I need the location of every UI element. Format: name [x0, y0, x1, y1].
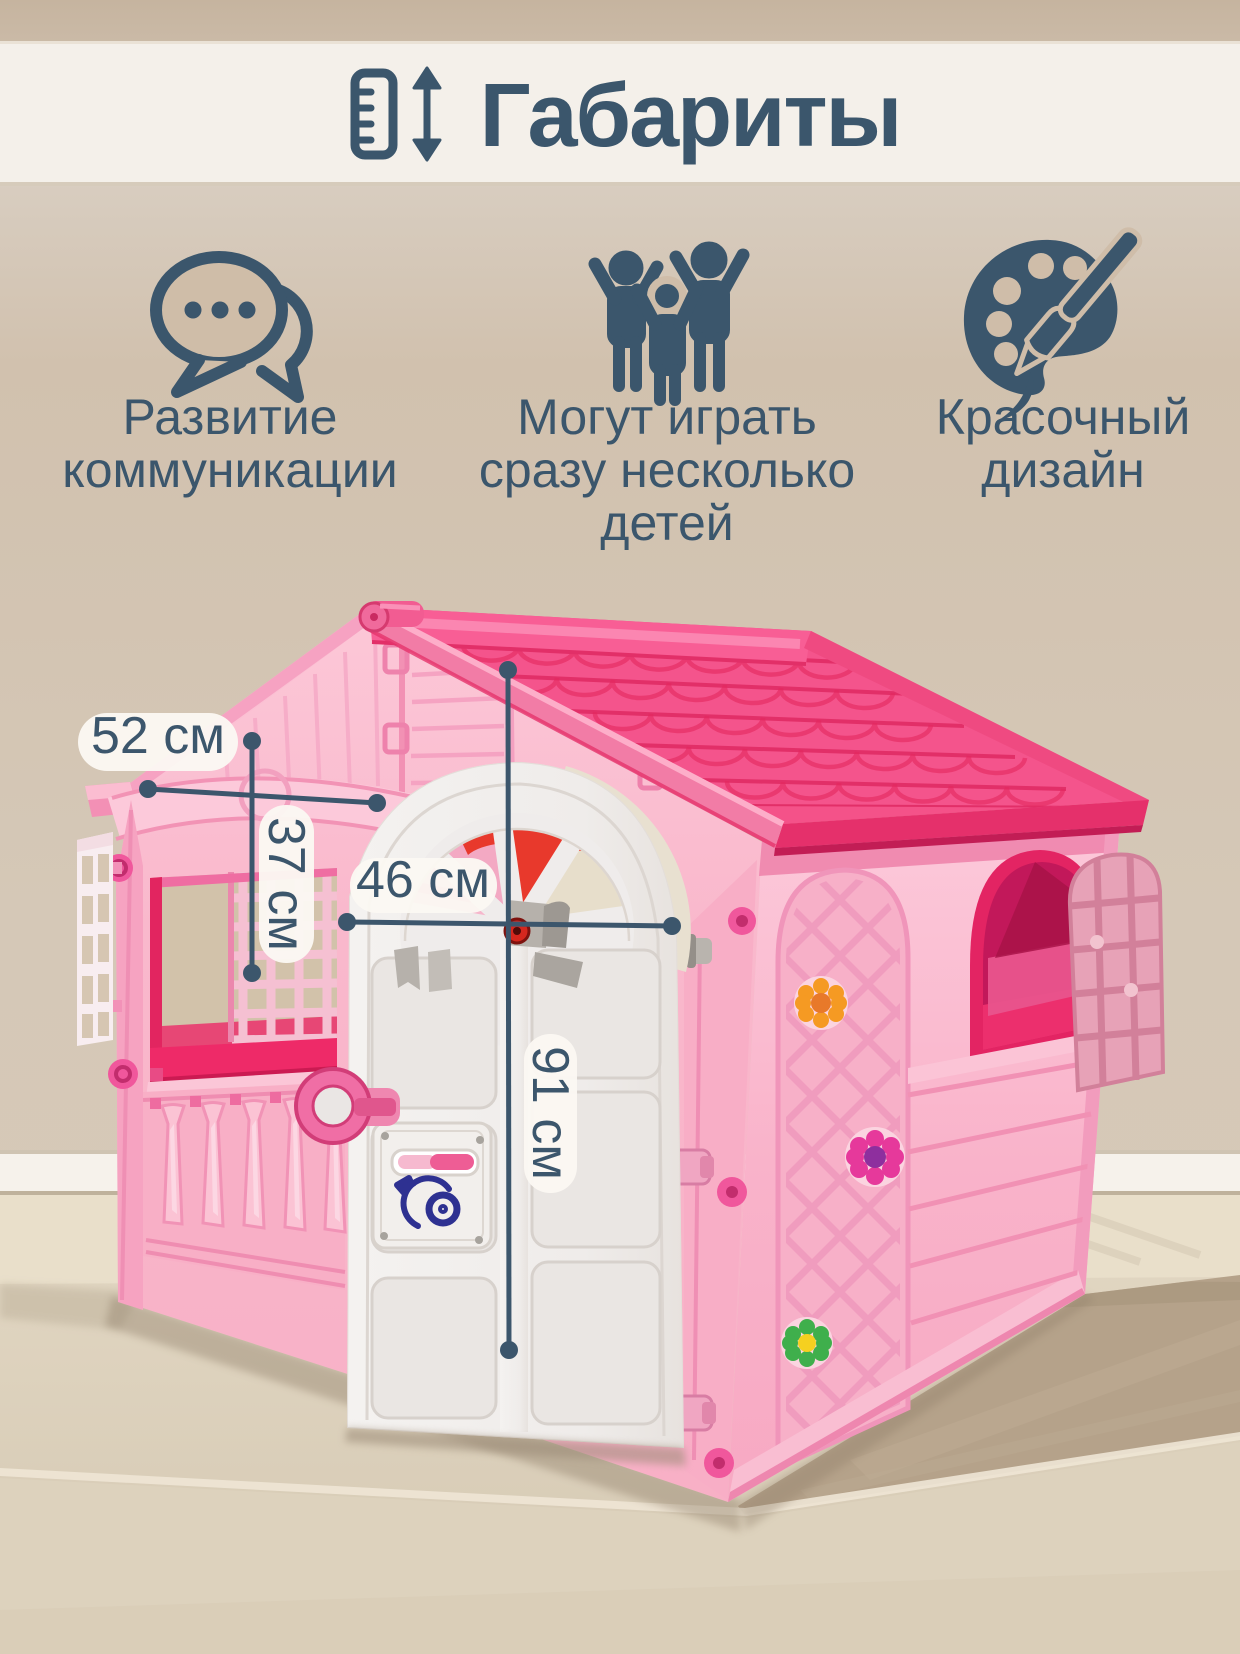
svg-text:Габариты: Габариты [480, 66, 901, 166]
svg-text:91 см: 91 см [521, 1046, 579, 1180]
svg-text:37 см: 37 см [257, 817, 315, 951]
svg-text:Развитие: Развитие [123, 389, 338, 445]
svg-text:Могут играть: Могут играть [517, 389, 817, 445]
svg-text:52 см: 52 см [91, 707, 225, 765]
svg-text:коммуникации: коммуникации [62, 442, 397, 498]
svg-text:Красочный: Красочный [936, 389, 1191, 445]
svg-text:сразу несколько: сразу несколько [479, 442, 855, 498]
svg-text:46 см: 46 см [356, 851, 490, 909]
svg-text:дизайн: дизайн [981, 442, 1144, 498]
svg-text:детей: детей [600, 495, 733, 551]
